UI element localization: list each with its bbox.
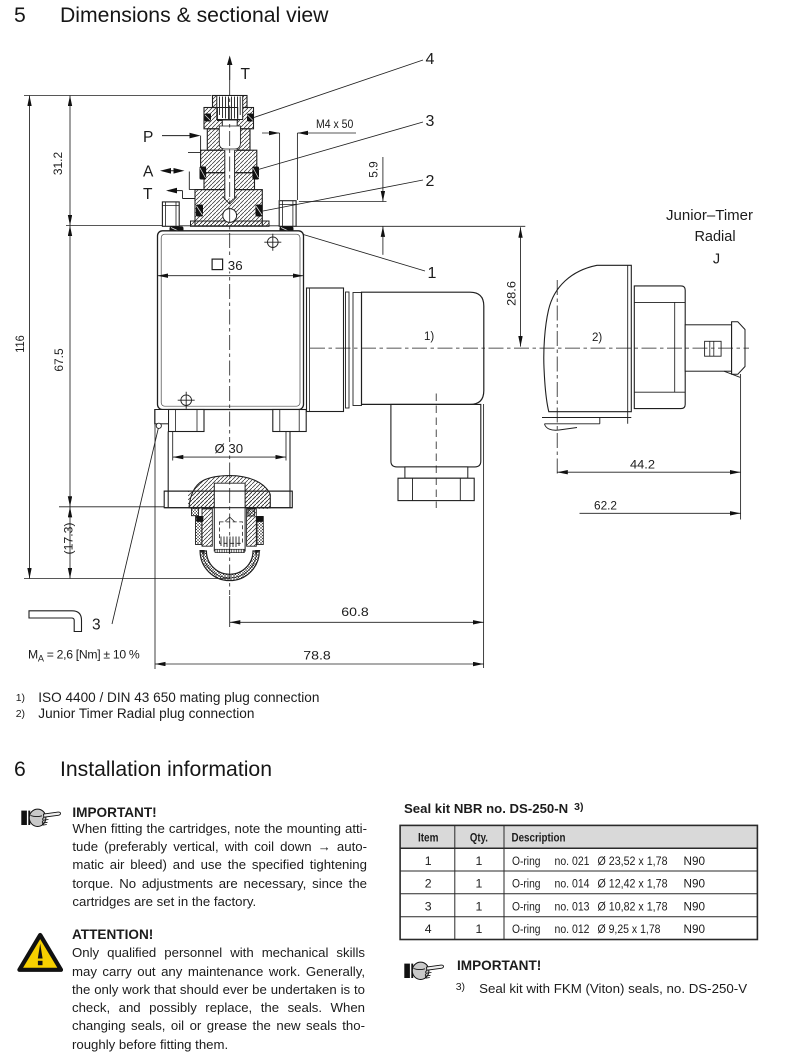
svg-text:N90: N90: [684, 854, 706, 868]
svg-text:3: 3: [425, 899, 432, 913]
svg-text:J: J: [713, 252, 720, 268]
svg-text:T: T: [143, 186, 153, 203]
svg-text:78.8: 78.8: [303, 649, 331, 663]
svg-text:MA = 2,6 [Nm] ± 10 %: MA = 2,6 [Nm] ± 10 %: [28, 648, 140, 664]
svg-text:A: A: [143, 164, 154, 181]
svg-text:O-ring: O-ring: [512, 922, 541, 936]
svg-text:1): 1): [424, 331, 434, 343]
svg-text:1: 1: [475, 922, 482, 936]
svg-text:31.2: 31.2: [51, 152, 65, 176]
svg-text:O-ring: O-ring: [512, 899, 541, 913]
svg-text:N90: N90: [684, 877, 706, 891]
svg-text:1: 1: [475, 877, 482, 891]
svg-text:36: 36: [228, 258, 243, 273]
svg-text:2: 2: [426, 173, 435, 190]
svg-text:4: 4: [426, 51, 435, 68]
svg-text:Ø 23,52 x 1,78: Ø 23,52 x 1,78: [598, 854, 668, 868]
svg-text:44.2: 44.2: [630, 458, 655, 472]
svg-text:Junior–Timer: Junior–Timer: [666, 208, 753, 224]
svg-text:O-ring: O-ring: [512, 877, 541, 891]
svg-text:Ø 12,42 x 1,78: Ø 12,42 x 1,78: [598, 877, 668, 891]
svg-text:28.6: 28.6: [505, 281, 519, 306]
svg-text:N90: N90: [684, 922, 706, 936]
svg-text:Ø 9,25 x 1,78: Ø 9,25 x 1,78: [598, 922, 661, 936]
svg-text:P: P: [143, 129, 153, 146]
svg-text:no. 012: no. 012: [555, 922, 590, 936]
svg-text:62.2: 62.2: [594, 499, 617, 513]
svg-text:116: 116: [13, 335, 27, 353]
svg-text:no. 021: no. 021: [555, 854, 590, 868]
svg-text:3: 3: [92, 617, 101, 634]
svg-text:1: 1: [475, 899, 482, 913]
svg-text:60.8: 60.8: [341, 605, 369, 619]
svg-text:O-ring: O-ring: [512, 854, 541, 868]
svg-text:Ø 30: Ø 30: [215, 441, 244, 456]
svg-text:5.9: 5.9: [367, 161, 381, 178]
svg-text:67.5: 67.5: [52, 348, 66, 372]
svg-text:2): 2): [592, 332, 602, 344]
svg-text:Radial: Radial: [694, 229, 735, 245]
svg-text:Ø 10,82 x 1,78: Ø 10,82 x 1,78: [598, 899, 668, 913]
svg-text:(17.3): (17.3): [62, 523, 76, 555]
svg-text:2: 2: [425, 877, 432, 891]
svg-text:Qty.: Qty.: [470, 831, 488, 845]
svg-text:no. 014: no. 014: [555, 877, 590, 891]
svg-text:T: T: [241, 66, 251, 83]
svg-text:1: 1: [428, 265, 437, 282]
svg-text:3: 3: [426, 113, 435, 130]
svg-text:1: 1: [475, 854, 482, 868]
svg-text:4: 4: [425, 922, 432, 936]
svg-text:1: 1: [425, 854, 432, 868]
svg-text:M4 x 50: M4 x 50: [316, 117, 354, 131]
svg-text:N90: N90: [684, 899, 706, 913]
svg-text:no. 013: no. 013: [555, 899, 590, 913]
svg-text:Description: Description: [512, 831, 566, 845]
svg-text:Item: Item: [418, 831, 439, 845]
